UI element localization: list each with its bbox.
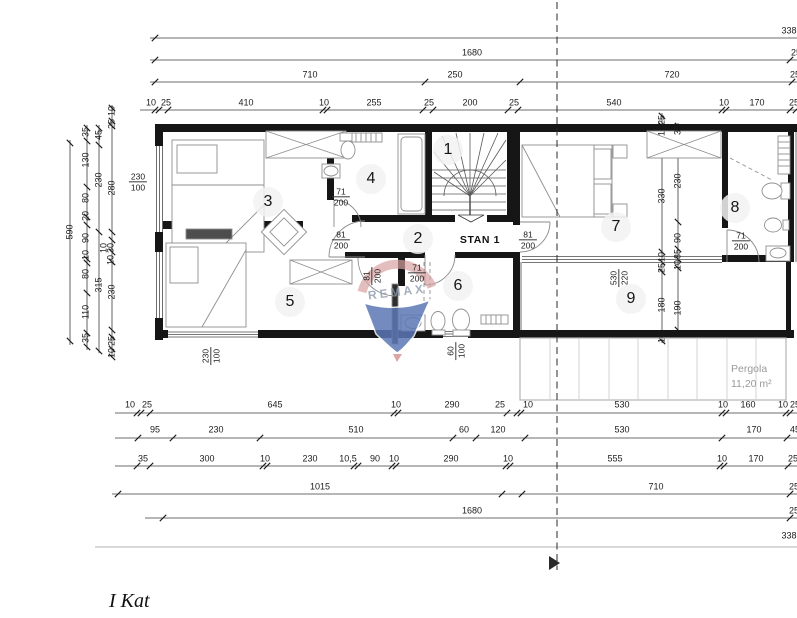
dim-label: 1015	[310, 483, 330, 492]
dim-label: 35	[674, 249, 683, 259]
dim-label: 25	[161, 99, 171, 108]
dim-label: 25	[658, 263, 667, 273]
dim-label: 10	[658, 252, 667, 262]
drawing-title: I Kat	[109, 590, 150, 613]
dim-label: 200	[462, 99, 477, 108]
dim-label: 10	[778, 401, 788, 410]
dim-label: 160	[740, 401, 755, 410]
dim-label: 10	[658, 333, 667, 343]
dim-label: 10	[389, 455, 399, 464]
dim-label: 280	[108, 180, 117, 195]
dim-label: 25	[108, 119, 117, 129]
dim-label: 30	[107, 243, 116, 253]
door-size-label: 71200	[732, 230, 750, 251]
dim-label: 555	[607, 455, 622, 464]
dim-label: 315	[95, 277, 104, 292]
door-size-label-width: 81	[361, 267, 372, 285]
dim-label: 10	[125, 401, 135, 410]
floor-plan-page: 3381680257102507202510254101025525200255…	[0, 0, 797, 618]
dim-label: 35	[82, 127, 91, 137]
dim-label: 25	[790, 401, 797, 410]
dim-label: 10	[503, 455, 513, 464]
window-size-label: 60100	[445, 342, 466, 360]
dim-label: 10	[523, 401, 533, 410]
door-size-label-height: 200	[332, 241, 350, 251]
window-size-label: 230100	[200, 347, 221, 365]
dim-label: 410	[238, 99, 253, 108]
window-size-label-width: 230	[129, 171, 147, 182]
dim-label: 530	[614, 426, 629, 435]
room-number-4: 4	[356, 164, 386, 194]
dim-label: 255	[366, 99, 381, 108]
dim-label: 1680	[462, 49, 482, 58]
door-size-label-height: 200	[373, 267, 383, 285]
dim-label: 710	[302, 71, 317, 80]
dim-label: 90	[82, 233, 91, 243]
dim-label: 45	[790, 426, 797, 435]
dim-label: 10	[108, 348, 117, 358]
dim-label: 230	[108, 284, 117, 299]
dim-label: 25	[789, 507, 797, 516]
dim-label: 710	[648, 483, 663, 492]
dim-label: 10	[107, 255, 116, 265]
dim-label: 338	[781, 532, 796, 541]
window-size-label-height: 100	[457, 342, 467, 360]
dim-label: 110	[82, 305, 91, 319]
window-size-label-width: 60	[445, 342, 456, 360]
dim-label: 25	[789, 99, 797, 108]
dim-label: 80	[82, 193, 91, 203]
door-size-label: 81200	[332, 229, 350, 250]
dim-label: 10	[658, 126, 667, 136]
window-size-label-height: 100	[212, 347, 222, 365]
dim-label: 510	[348, 426, 363, 435]
dim-label: 338	[781, 27, 796, 36]
pergola-label: Pergola11,20 m²	[731, 362, 772, 392]
dim-label: 120	[490, 426, 505, 435]
dim-label: 230	[208, 426, 223, 435]
dim-label: 10	[319, 99, 329, 108]
dim-label: 290	[444, 401, 459, 410]
door-size-label: 81200	[361, 267, 382, 285]
dim-label: 230	[95, 172, 104, 187]
door-size-label-height: 200	[519, 241, 537, 251]
room-number-5: 5	[275, 287, 305, 317]
dim-label: 645	[267, 401, 282, 410]
dim-label: 95	[150, 426, 160, 435]
dim-label: 25	[658, 115, 667, 125]
dim-label: 10,5	[339, 455, 357, 464]
dim-label: 25	[509, 99, 519, 108]
dim-label: 25	[495, 401, 505, 410]
dim-label: 25	[108, 336, 117, 346]
dim-label: 230	[302, 455, 317, 464]
door-size-label-width: 71	[732, 230, 750, 241]
dim-label: 170	[746, 426, 761, 435]
door-size-label-height: 200	[332, 198, 350, 208]
dim-label: 25	[142, 401, 152, 410]
dim-label: 45	[95, 130, 104, 140]
dim-label: 10	[260, 455, 270, 464]
pergola-name: Pergola	[731, 362, 772, 377]
door-size-label-width: 81	[332, 229, 350, 240]
room-number-9: 9	[616, 284, 646, 314]
dim-label: 25	[791, 49, 797, 58]
dim-label: 60	[459, 426, 469, 435]
dim-label: 180	[658, 297, 667, 312]
dim-label: 10	[719, 99, 729, 108]
dim-label: 10	[108, 106, 117, 116]
window-size-label-width: 230	[200, 347, 211, 365]
dim-label: 170	[749, 99, 764, 108]
door-size-label: 71200	[408, 262, 426, 283]
window-size-label-width: 530	[608, 269, 619, 287]
room-number-6: 6	[443, 271, 473, 301]
dim-label: 10	[146, 99, 156, 108]
dim-label: 230	[674, 173, 683, 188]
door-size-label: 81200	[519, 229, 537, 250]
dim-label: 10	[718, 401, 728, 410]
dim-label: 130	[82, 152, 91, 167]
dim-label: 300	[199, 455, 214, 464]
room-number-1: 1	[433, 135, 463, 165]
room-number-2: 2	[403, 224, 433, 254]
room-number-7: 7	[601, 212, 631, 242]
dim-label: 10	[674, 260, 683, 270]
window-size-label-height: 100	[129, 183, 147, 193]
dim-label: 25	[790, 71, 797, 80]
dim-label: 90	[674, 233, 683, 243]
dim-label: 20	[82, 211, 91, 221]
dim-label: 25	[788, 455, 797, 464]
dim-label: 590	[66, 224, 75, 239]
dim-label: 290	[443, 455, 458, 464]
apartment-label: STAN 1	[460, 234, 500, 246]
dim-label: 10	[391, 401, 401, 410]
room-number-3: 3	[253, 187, 283, 217]
window-size-label: 230100	[129, 171, 147, 192]
dim-label: 170	[748, 455, 763, 464]
door-size-label: 71200	[332, 186, 350, 207]
section-arrow-icon	[549, 556, 560, 570]
dim-label: 330	[658, 188, 667, 203]
door-size-label-width: 71	[408, 262, 426, 273]
pergola-area: 11,20 m²	[731, 377, 772, 392]
dim-label: 190	[674, 300, 683, 315]
door-size-label-height: 200	[732, 242, 750, 252]
dim-label: 540	[606, 99, 621, 108]
room-number-8: 8	[720, 193, 750, 223]
dim-label: 90	[370, 455, 380, 464]
dim-label: 35	[674, 125, 683, 135]
dim-label: 80	[82, 269, 91, 279]
dim-label: 25	[789, 483, 797, 492]
dim-label: 250	[447, 71, 462, 80]
dim-label: 1680	[462, 507, 482, 516]
dim-label: 35	[82, 333, 91, 343]
dim-label: 10	[82, 250, 91, 260]
dim-label: 25	[424, 99, 434, 108]
door-size-label-width: 71	[332, 186, 350, 197]
dim-label: 720	[664, 71, 679, 80]
dim-label: 530	[614, 401, 629, 410]
dim-label: 35	[138, 455, 148, 464]
door-size-label-width: 81	[519, 229, 537, 240]
dim-label: 10	[717, 455, 727, 464]
